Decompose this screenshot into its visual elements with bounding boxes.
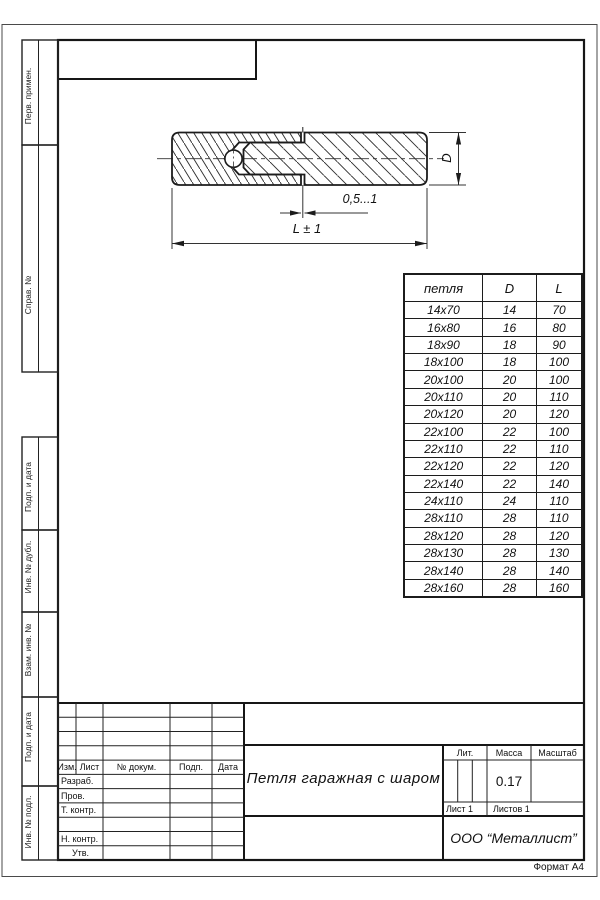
table-cell: 22x120 <box>405 458 483 474</box>
table-cell: 28 <box>483 510 537 526</box>
table-cell: 22x140 <box>405 476 483 492</box>
table-cell: 70 <box>537 302 581 318</box>
table-cell: 22 <box>483 476 537 492</box>
tb-row-nkontr: Н. контр. <box>58 832 106 846</box>
table-row: 22x12022120 <box>405 458 581 475</box>
table-cell: 110 <box>537 389 581 405</box>
table-cell: 20 <box>483 371 537 387</box>
table-row: 18x10018100 <box>405 354 581 371</box>
table-row: 14x701470 <box>405 302 581 319</box>
tb-col-izm: Изм. <box>58 760 76 774</box>
table-cell: 80 <box>537 319 581 335</box>
spec-table-body: 14x70147016x80168018x90189018x1001810020… <box>405 302 581 596</box>
table-cell: 110 <box>537 493 581 509</box>
table-cell: 20x120 <box>405 406 483 422</box>
tb-col-list: Лист <box>76 760 103 774</box>
table-cell: 160 <box>537 580 581 596</box>
spec-table-header: петля D L <box>405 275 581 302</box>
tb-sheet: Лист 1 <box>443 802 490 816</box>
table-cell: 20 <box>483 406 537 422</box>
tb-org: ООО “Металлист” <box>443 816 584 860</box>
table-cell: 20x100 <box>405 371 483 387</box>
table-row: 28x14028140 <box>405 562 581 579</box>
table-cell: 140 <box>537 476 581 492</box>
table-cell: 140 <box>537 562 581 578</box>
table-row: 28x12028120 <box>405 528 581 545</box>
table-cell: 100 <box>537 424 581 440</box>
table-row: 28x16028160 <box>405 580 581 596</box>
table-cell: 120 <box>537 458 581 474</box>
spec-header-l: L <box>537 275 581 301</box>
table-cell: 14x70 <box>405 302 483 318</box>
tb-row-tkontr: Т. контр. <box>58 803 106 817</box>
table-row: 22x10022100 <box>405 424 581 441</box>
table-row: 28x13028130 <box>405 545 581 562</box>
tb-mass-value: 0.17 <box>487 760 531 802</box>
table-cell: 22 <box>483 458 537 474</box>
table-cell: 18x100 <box>405 354 483 370</box>
spec-header-petlya: петля <box>405 275 483 301</box>
tb-col-data: Дата <box>212 760 244 774</box>
format-label: Формат А4 <box>460 862 584 873</box>
table-cell: 28 <box>483 528 537 544</box>
table-row: 20x11020110 <box>405 389 581 406</box>
table-cell: 22 <box>483 441 537 457</box>
tb-col-podp: Подп. <box>170 760 212 774</box>
table-row: 24x11024110 <box>405 493 581 510</box>
tb-row-prov: Пров. <box>58 789 106 803</box>
table-row: 28x11028110 <box>405 510 581 527</box>
tb-lit-label: Лит. <box>443 745 487 760</box>
sidebar-label-inv-podl: Инв. № подл. <box>23 752 37 892</box>
top-designation-box <box>58 40 256 79</box>
table-cell: 28 <box>483 545 537 561</box>
table-cell: 28 <box>483 580 537 596</box>
cone-seat-lines <box>225 143 240 175</box>
table-cell: 130 <box>537 545 581 561</box>
table-cell: 120 <box>537 406 581 422</box>
table-cell: 110 <box>537 441 581 457</box>
table-row: 16x801680 <box>405 319 581 336</box>
table-cell: 110 <box>537 510 581 526</box>
table-cell: 22x110 <box>405 441 483 457</box>
table-cell: 100 <box>537 354 581 370</box>
part-title: Петля гаражная с шаром <box>244 745 443 811</box>
table-row: 22x14022140 <box>405 476 581 493</box>
table-cell: 28x160 <box>405 580 483 596</box>
table-cell: 28x130 <box>405 545 483 561</box>
table-cell: 28x110 <box>405 510 483 526</box>
sleeve-section <box>172 133 301 186</box>
table-cell: 28x120 <box>405 528 483 544</box>
tb-col-ndokum: № докум. <box>103 760 170 774</box>
table-cell: 18 <box>483 354 537 370</box>
sidebar-label-sprav-no: Справ. № <box>23 225 37 365</box>
tb-scale-label: Масштаб <box>531 745 584 760</box>
table-cell: 20x110 <box>405 389 483 405</box>
drawing-sheet: Перв. примен. Справ. № Подп. и дата Инв.… <box>0 0 600 900</box>
sidebar-label-perv-primen: Перв. примен. <box>23 26 37 166</box>
dim-length-text: L ± 1 <box>277 221 337 236</box>
table-cell: 24x110 <box>405 493 483 509</box>
dim-diameter-text: D <box>437 143 457 173</box>
table-cell: 100 <box>537 371 581 387</box>
table-cell: 18x90 <box>405 337 483 353</box>
table-row: 22x11022110 <box>405 441 581 458</box>
ball <box>225 150 242 167</box>
pin-section <box>244 133 428 186</box>
table-cell: 14 <box>483 302 537 318</box>
table-cell: 16x80 <box>405 319 483 335</box>
table-cell: 28x140 <box>405 562 483 578</box>
table-cell: 120 <box>537 528 581 544</box>
table-row: 20x12020120 <box>405 406 581 423</box>
tb-sheets: Листов 1 <box>487 802 590 816</box>
table-row: 18x901890 <box>405 337 581 354</box>
table-cell: 28 <box>483 562 537 578</box>
tb-row-razrab: Разраб. <box>58 774 106 788</box>
table-cell: 16 <box>483 319 537 335</box>
table-row: 20x10020100 <box>405 371 581 388</box>
table-cell: 22 <box>483 424 537 440</box>
dim-gap-text: 0,5...1 <box>320 192 400 206</box>
table-cell: 90 <box>537 337 581 353</box>
tb-row-utv: Утв. <box>58 846 103 860</box>
tb-mass-label: Масса <box>487 745 531 760</box>
table-cell: 20 <box>483 389 537 405</box>
table-cell: 24 <box>483 493 537 509</box>
table-cell: 22x100 <box>405 424 483 440</box>
spec-header-d: D <box>483 275 537 301</box>
table-cell: 18 <box>483 337 537 353</box>
spec-table: петля D L 14x70147016x80168018x90189018x… <box>403 273 583 598</box>
